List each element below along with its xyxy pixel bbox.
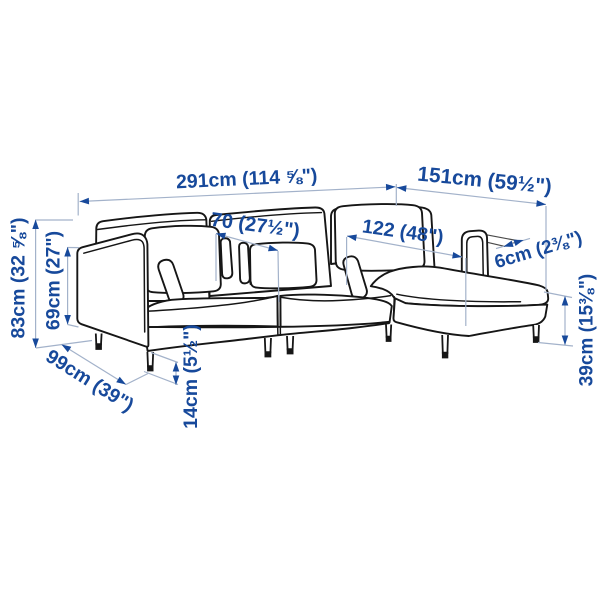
svg-text:14cm (5½"): 14cm (5½")	[180, 324, 202, 429]
svg-text:83cm (32 ⅝"): 83cm (32 ⅝")	[8, 218, 30, 339]
svg-text:69cm (27"): 69cm (27")	[43, 231, 65, 330]
svg-text:39cm (15⅜"): 39cm (15⅜")	[577, 274, 598, 387]
